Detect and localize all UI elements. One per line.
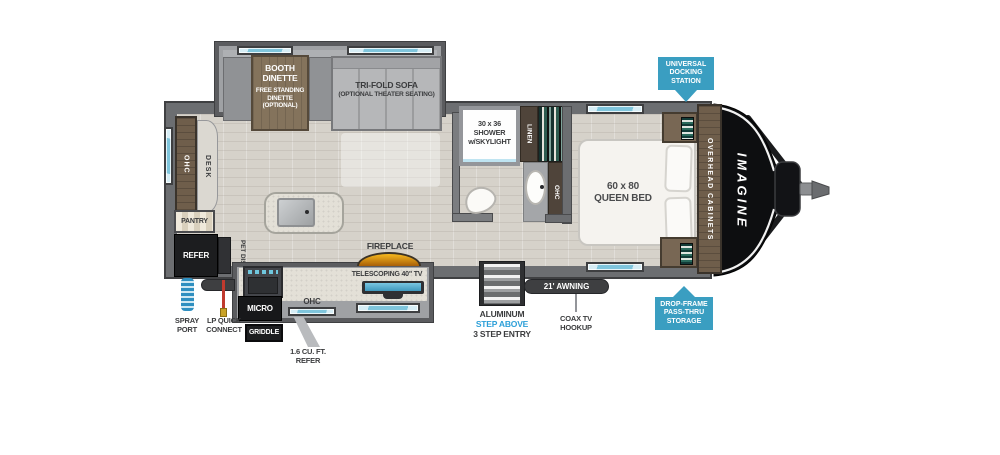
imagine-logo: IMAGINE bbox=[735, 153, 750, 230]
telescoping-tv bbox=[362, 281, 424, 294]
nightstand bbox=[662, 112, 698, 143]
window bbox=[237, 46, 293, 55]
badge-pointer-down bbox=[675, 90, 697, 102]
bedroom-wall bbox=[562, 106, 572, 224]
overhead-cabinets: OVERHEAD CABINETS bbox=[697, 104, 722, 274]
step-entry-label: ALUMINUM STEP ABOVE 3 STEP ENTRY bbox=[456, 309, 548, 340]
booth-dinette-title: BOOTH DINETTE bbox=[253, 63, 307, 83]
lp-quick-connect-line bbox=[222, 280, 225, 310]
entry-steps bbox=[479, 261, 525, 306]
window bbox=[347, 46, 434, 55]
linen-closet: LINEN bbox=[520, 106, 538, 162]
window bbox=[586, 104, 644, 114]
nightstand bbox=[660, 237, 698, 268]
griddle: GRIDDLE bbox=[245, 324, 283, 342]
bathroom-faucet bbox=[540, 185, 544, 189]
window bbox=[288, 307, 336, 316]
badge-pointer-up bbox=[673, 286, 695, 297]
linen-label: LINEN bbox=[521, 107, 537, 161]
awning-bar: 21' AWNING bbox=[524, 279, 609, 294]
mini-refer-label: 1.6 CU. FT. REFER bbox=[276, 347, 340, 365]
kitchen-sink bbox=[277, 198, 315, 227]
awning-label: 21' AWNING bbox=[525, 280, 608, 293]
shower: 30 x 36 SHOWER w/SKYLIGHT bbox=[459, 106, 520, 166]
bathroom-wall bbox=[452, 213, 493, 222]
lp-quick-connect-label: LP QUICK CONNECT bbox=[198, 316, 250, 334]
tv-label: TELESCOPING 40" TV bbox=[348, 271, 426, 279]
docking-station-badge: UNIVERSAL DOCKING STATION bbox=[658, 57, 714, 102]
tri-fold-sofa: TRI-FOLD SOFA (OPTIONAL THEATER SEATING) bbox=[331, 56, 442, 131]
queen-bed-label: 60 x 80 QUEEN BED bbox=[585, 181, 661, 205]
window bbox=[164, 127, 173, 185]
tri-fold-sofa-sub: (OPTIONAL THEATER SEATING) bbox=[333, 91, 440, 99]
ohc-cabinet-left: OHC bbox=[175, 116, 197, 212]
nightstand-screen bbox=[680, 243, 693, 265]
step-entry-line1: ALUMINUM bbox=[456, 309, 548, 319]
desk: DESK bbox=[197, 120, 218, 213]
tongue-jack bbox=[800, 183, 813, 195]
step-entry-line2: STEP ABOVE bbox=[456, 319, 548, 329]
overhead-cabinets-label: OVERHEAD CABINETS bbox=[699, 106, 720, 272]
booth-dinette-sub: FREE STANDING DINETTE (OPTIONAL) bbox=[253, 87, 307, 110]
cooktop-surface bbox=[248, 277, 278, 294]
coax-label: COAX TV HOOKUP bbox=[544, 314, 608, 332]
kitchen-faucet bbox=[305, 210, 309, 214]
dinette-bench bbox=[223, 57, 252, 121]
storage-badge: DROP-FRAME PASS-THRU STORAGE bbox=[655, 286, 713, 330]
ohc-left-label: OHC bbox=[177, 118, 195, 210]
shower-label: 30 x 36 SHOWER w/SKYLIGHT bbox=[463, 120, 516, 146]
hitch-coupler bbox=[812, 181, 829, 199]
step-treads bbox=[484, 264, 520, 304]
cooktop bbox=[243, 266, 283, 298]
desk-label: DESK bbox=[198, 121, 217, 212]
spray-port-coil bbox=[181, 278, 194, 311]
tv-stand bbox=[383, 294, 403, 299]
pantry-label: PANTRY bbox=[176, 212, 213, 231]
floorplan-canvas: IMAGINE BOOTH DINETTE FREE STANDING DINE… bbox=[0, 0, 1000, 455]
cooktop-knobs bbox=[248, 270, 278, 274]
window bbox=[356, 303, 420, 313]
nightstand-screen bbox=[681, 117, 694, 140]
awning-stub bbox=[201, 279, 235, 291]
tri-fold-sofa-title: TRI-FOLD SOFA bbox=[333, 80, 440, 90]
step-entry-line3: 3 STEP ENTRY bbox=[456, 329, 548, 339]
bedroom-wall bbox=[545, 214, 572, 223]
refer-label: REFER bbox=[175, 235, 217, 276]
refrigerator: REFER bbox=[174, 234, 218, 277]
sofa-back bbox=[333, 58, 440, 69]
window bbox=[586, 262, 644, 272]
refer-side-cabinet bbox=[218, 237, 231, 274]
griddle-label: GRIDDLE bbox=[247, 326, 281, 340]
booth-dinette-table: BOOTH DINETTE FREE STANDING DINETTE (OPT… bbox=[251, 55, 309, 131]
sofa-fold-out-area bbox=[341, 133, 440, 187]
ohc-kitchen-label: OHC bbox=[288, 297, 336, 307]
fireplace-label: FIREPLACE bbox=[352, 241, 428, 251]
pillow bbox=[664, 145, 693, 193]
tv-screen bbox=[365, 283, 421, 291]
coax-line bbox=[575, 294, 577, 312]
storage-badge-text: DROP-FRAME PASS-THRU STORAGE bbox=[655, 297, 713, 330]
propane-cover bbox=[775, 162, 800, 216]
pantry: PANTRY bbox=[174, 210, 215, 233]
docking-station-badge-text: UNIVERSAL DOCKING STATION bbox=[658, 57, 714, 90]
